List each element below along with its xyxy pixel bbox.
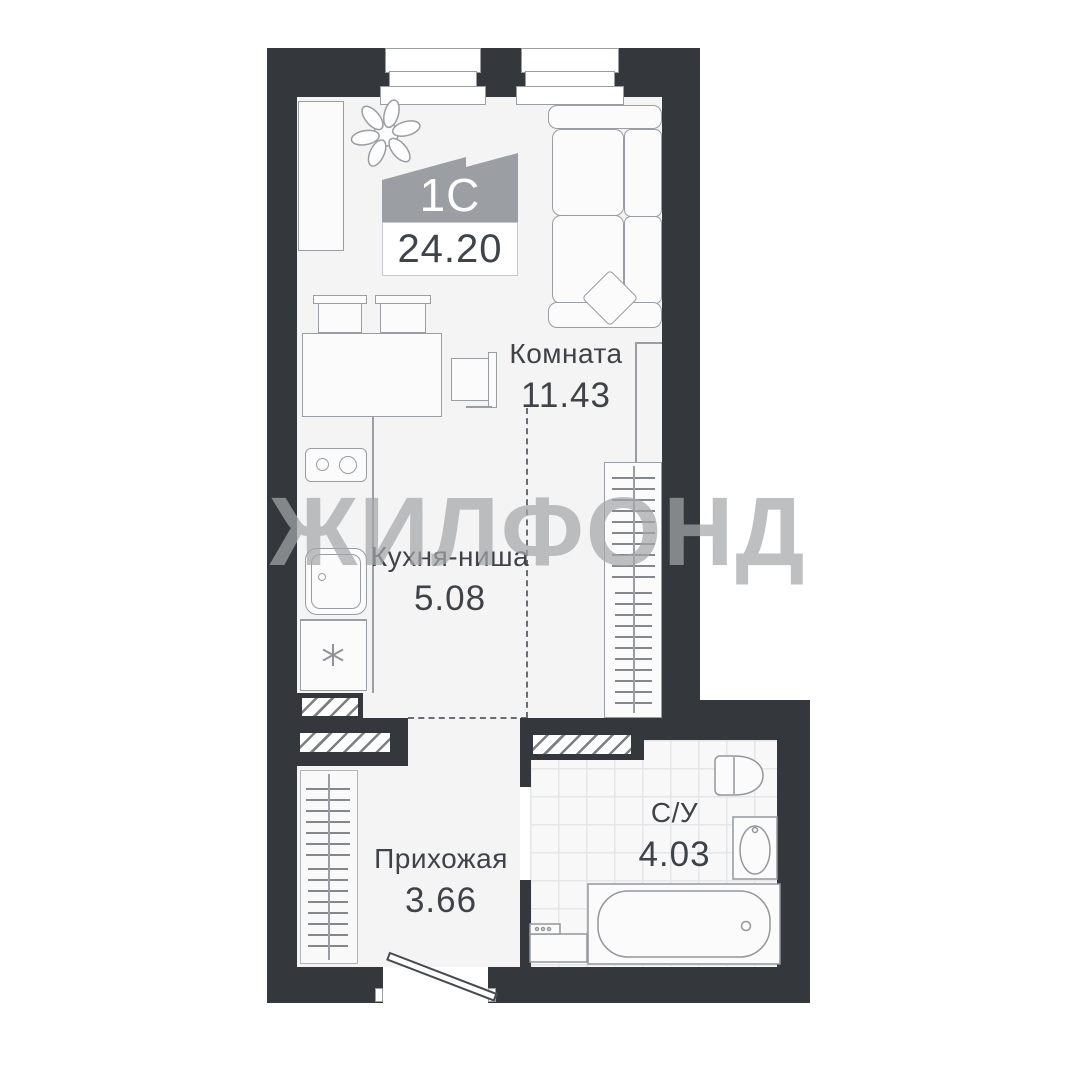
sofa-armrest-top	[548, 105, 662, 129]
niche-boundary-horizontal	[408, 717, 527, 719]
floor-passage	[408, 718, 520, 768]
entry-door-jamb-left	[375, 988, 383, 1002]
vent-shaft-hatch-hallway	[300, 733, 390, 752]
window-1-outer	[385, 48, 481, 73]
cooktop-burner-small	[316, 458, 329, 471]
wall-right-lower	[777, 700, 810, 1003]
total-area-box: 24.20	[382, 222, 518, 276]
window-2-frame	[525, 71, 615, 87]
apartment-type-label: 1С	[420, 172, 481, 222]
total-area-value: 24.20	[397, 227, 502, 272]
floorplan-canvas: 1С 24.20 Комната 11.43 Кухня-ниша 5.08 П…	[0, 0, 1080, 1080]
room-label-hallway: Прихожая 3.66	[356, 843, 526, 921]
room-area: 11.43	[486, 376, 646, 416]
stool-3-seat	[451, 358, 489, 401]
vent-shaft-hatch-kitchen	[302, 698, 358, 716]
stool-1-seat	[318, 303, 362, 333]
sofa-cushion-1	[552, 129, 624, 216]
snowflake-icon	[321, 643, 345, 667]
room-area: 4.03	[602, 835, 747, 875]
room-label-living: Комната 11.43	[486, 338, 646, 416]
wardrobe-hallway-rail	[328, 774, 330, 960]
window-2-outer	[521, 48, 619, 73]
bath-cabinet	[530, 934, 587, 962]
room-label-bathroom: С/У 4.03	[602, 797, 747, 875]
dining-table	[302, 333, 442, 417]
toilet	[715, 756, 763, 795]
window-2-sill	[516, 86, 624, 105]
window-1-frame	[389, 71, 477, 87]
room-name: Прихожая	[356, 843, 526, 875]
cabinet-top-left	[298, 101, 344, 251]
sofa-backrest-1	[624, 129, 662, 217]
plant-icon	[350, 96, 422, 168]
wall-bottom	[267, 967, 810, 1003]
watermark-text: ЖИЛФОНД	[255, 474, 821, 590]
stool-2-seat	[380, 303, 426, 333]
room-area: 3.66	[356, 881, 526, 921]
wall-right-upper	[662, 48, 700, 740]
cooktop-burner-large	[339, 456, 357, 474]
room-name: Комната	[486, 338, 646, 370]
room-name: С/У	[602, 797, 747, 829]
